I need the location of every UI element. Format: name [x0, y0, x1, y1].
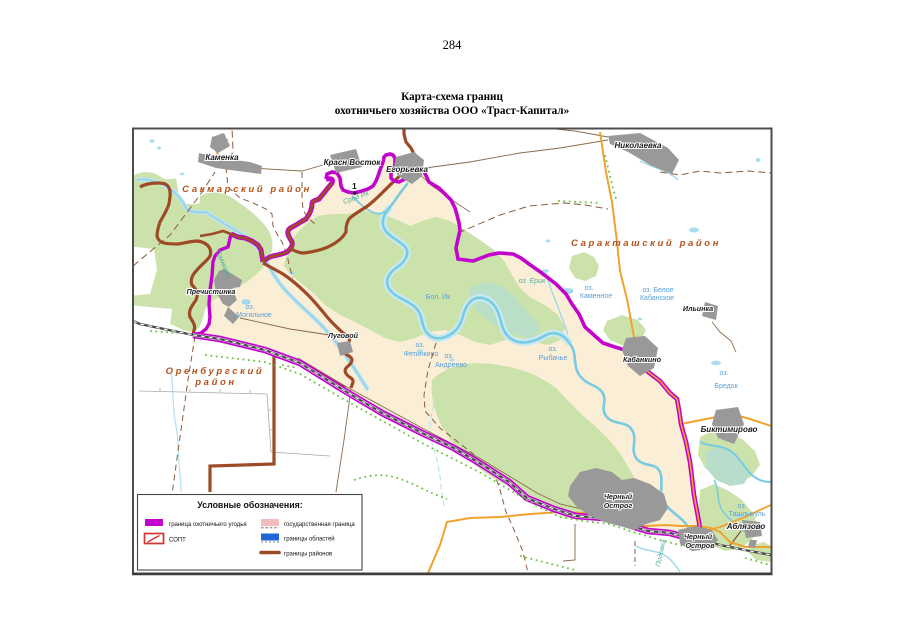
- svg-text:Кабанкино: Кабанкино: [623, 355, 662, 364]
- svg-text:оз.: оз.: [720, 370, 729, 377]
- svg-text:Сакмарский район: Сакмарский район: [182, 184, 312, 195]
- svg-text:Черный: Черный: [684, 532, 713, 541]
- svg-text:1: 1: [352, 181, 357, 191]
- svg-text:Кабанское: Кабанское: [640, 294, 674, 302]
- svg-text:Бредок: Бредок: [714, 383, 738, 390]
- svg-text:Андреево: Андреево: [435, 362, 467, 369]
- svg-text:Оренбургский: Оренбургский: [166, 366, 265, 377]
- svg-text:Красн Восток: Красн Восток: [324, 158, 382, 167]
- svg-text:государственная граница: государственная граница: [284, 522, 355, 528]
- svg-text:Могильное: Могильное: [236, 312, 272, 319]
- svg-text:Ташлыкуль: Ташлыкуль: [729, 511, 766, 518]
- svg-text:Черный: Черный: [604, 492, 633, 501]
- svg-text:Карта-схема границ: Карта-схема границ: [401, 91, 503, 103]
- svg-text:оз. Белое: оз. Белое: [642, 287, 673, 294]
- svg-text:Аблязово: Аблязово: [726, 522, 766, 531]
- svg-text:Остров: Остров: [685, 541, 715, 550]
- svg-text:284: 284: [443, 38, 463, 52]
- svg-text:Егорьевка: Егорьевка: [386, 165, 428, 174]
- svg-text:граница охотничьего угодья: граница охотничьего угодья: [169, 522, 247, 528]
- svg-text:район: район: [194, 377, 236, 388]
- svg-text:СОПТ: СОПТ: [169, 538, 186, 544]
- svg-text:Рыбачье: Рыбачье: [539, 354, 568, 362]
- svg-text:Ильинка: Ильинка: [683, 304, 713, 313]
- svg-text:охотничьего хозяйства ООО «Тра: охотничьего хозяйства ООО «Траст-Капитал…: [335, 105, 570, 117]
- svg-text:Биктимирово: Биктимирово: [701, 425, 758, 434]
- svg-text:Луговой: Луговой: [327, 331, 359, 340]
- svg-text:Пречистинка: Пречистинка: [187, 287, 236, 296]
- svg-text:границы областей: границы областей: [284, 536, 335, 543]
- svg-text:оз. Ерик: оз. Ерик: [519, 278, 546, 285]
- svg-text:Бол. Ик: Бол. Ик: [426, 294, 451, 301]
- svg-text:Каменное: Каменное: [580, 293, 612, 300]
- svg-text:оз.: оз.: [738, 503, 747, 510]
- svg-text:Николаевка: Николаевка: [615, 141, 662, 150]
- svg-text:Острог: Острог: [604, 501, 633, 510]
- svg-text:Фетинкино: Фетинкино: [404, 351, 439, 358]
- svg-text:оз.: оз.: [549, 346, 558, 353]
- svg-text:оз.: оз.: [585, 285, 594, 292]
- svg-text:оз.: оз.: [416, 342, 425, 349]
- svg-text:границы районов: границы районов: [284, 551, 332, 558]
- svg-text:Каменка: Каменка: [205, 153, 239, 162]
- svg-text:оз.: оз.: [445, 353, 454, 360]
- svg-text:Условные обозначения:: Условные обозначения:: [197, 500, 303, 510]
- svg-text:Саракташский район: Саракташский район: [571, 238, 721, 249]
- svg-text:оз.: оз.: [246, 304, 255, 311]
